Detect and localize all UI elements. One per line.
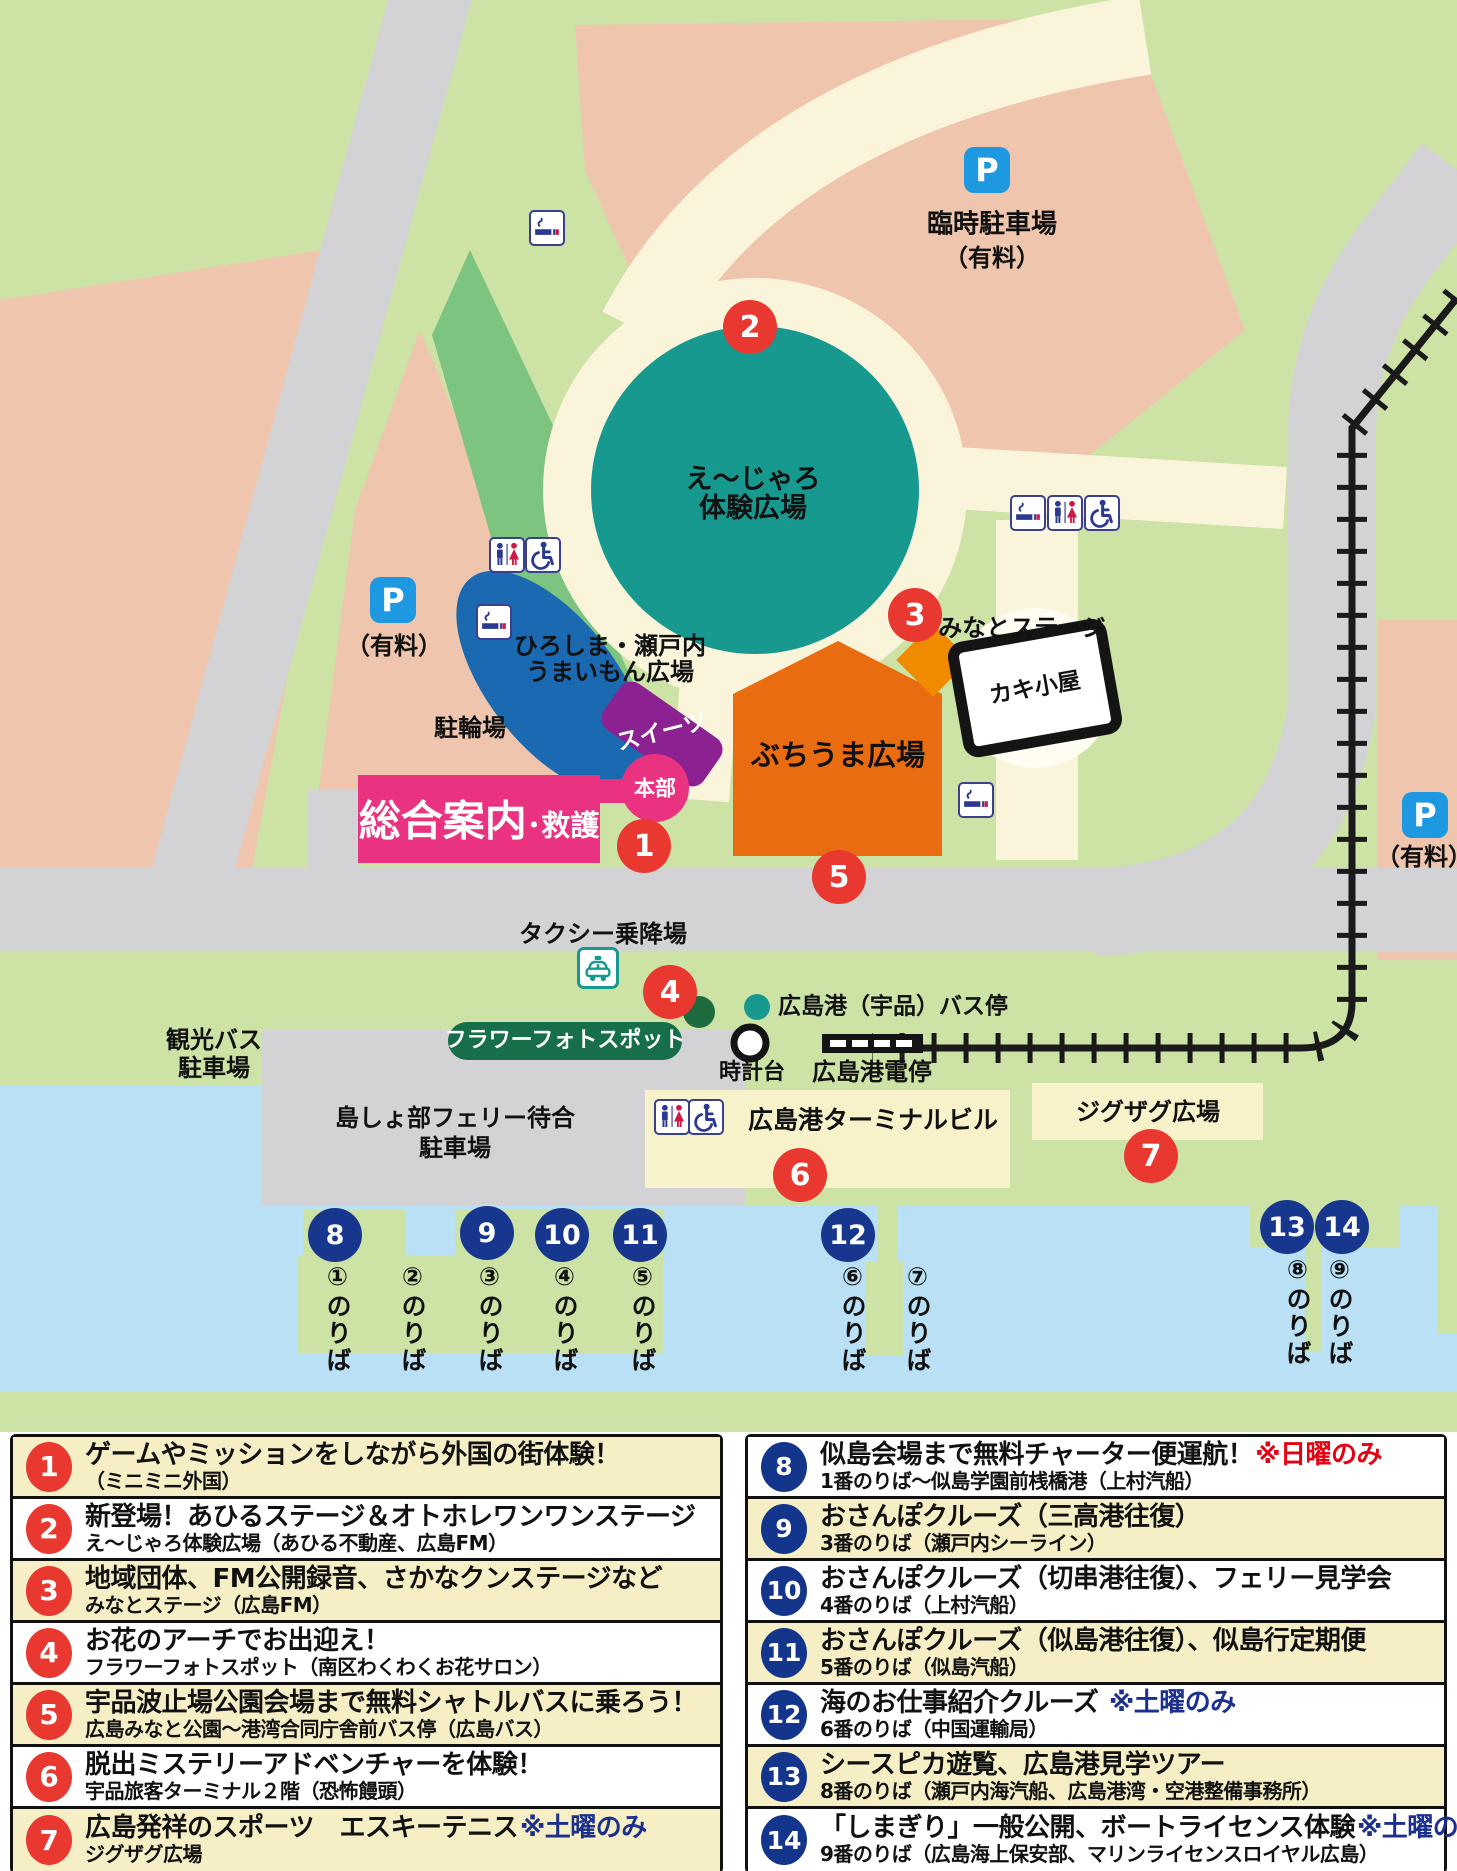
berth-label-8: ⑧のりば (1279, 1255, 1315, 1367)
smoking-icon (529, 210, 565, 246)
terminal-label: 広島港ターミナルビル (748, 1106, 998, 1134)
legend-number: 7 (26, 1815, 72, 1865)
bicycle-parking-label: 駐輪場 (434, 715, 506, 741)
legend-item-9: 9 おさんぽクルーズ（三高港往復）3番のりば（瀬戸内シーライン） (748, 1499, 1444, 1561)
info-banner-label: 総合案内･救護 (359, 788, 600, 849)
map-marker-2: 2 (723, 300, 777, 354)
west-parking-paid-label: （有料） (346, 633, 442, 659)
legend-item-6: 6 脱出ミステリーアドベンチャーを体験！宇品旅客ターミナル２階（恐怖饅頭） (13, 1747, 720, 1809)
wheelchair-icon (525, 537, 561, 573)
parking-icon: P (370, 577, 416, 623)
bus-stop-label: 広島港（宇品）バス停 (778, 994, 1008, 1019)
legend-item-2: 2 新登場！あひるステージ＆オトホレワンワンステージえ〜じゃろ体験広場（あひる不… (13, 1499, 720, 1561)
berth-label-1: ①のりば (319, 1262, 355, 1374)
parking-icon: P (964, 147, 1010, 193)
legend-number: 1 (26, 1442, 72, 1492)
legend-number: 12 (761, 1690, 807, 1740)
umaimon-label-1: ひろしま・瀬戸内 (514, 633, 706, 659)
legend-item-14: 14 「しまぎり」一般公開、ボートライセンス体験※土曜のみ9番のりば（広島海上保… (748, 1809, 1444, 1871)
east-parking-paid-label: （有料） (1376, 844, 1457, 870)
map-base-art (0, 0, 1457, 1432)
umaimon-label-2: うまいもん広場 (526, 659, 694, 685)
berth-label-2: ②のりば (394, 1262, 430, 1374)
water-west (0, 1085, 262, 1210)
map-marker-7: 7 (1124, 1129, 1178, 1183)
map-marker-10: 10 (535, 1208, 589, 1262)
tram-stop-label: 広島港電停 (812, 1059, 932, 1085)
legend-number: 10 (761, 1566, 807, 1616)
tour-bus-label-1: 観光バス (166, 1027, 262, 1053)
legend-number: 14 (761, 1815, 807, 1865)
ejaro-label-2: 体験広場 (699, 494, 807, 524)
legend-number: 13 (761, 1752, 807, 1802)
legend-item-7: 7 広島発祥のスポーツ エスキーテニス※土曜のみジグザグ広場 (13, 1809, 720, 1871)
buchiuma-label: ぶちうま広場 (751, 740, 925, 772)
map-marker-11: 11 (613, 1208, 667, 1262)
legend-item-3: 3 地域団体、FM公開録音、さかなクンステージなどみなとステージ（広島FM） (13, 1561, 720, 1623)
legend-number: 9 (761, 1504, 807, 1554)
port-festival-map: 臨時駐車場 （有料） （有料） （有料） え〜じゃろ 体験広場 ひろしま・瀬戸内… (0, 0, 1457, 1871)
wheelchair-icon (688, 1099, 724, 1135)
berth-label-3: ③のりば (471, 1262, 507, 1374)
map-marker-6: 6 (773, 1148, 827, 1202)
wheelchair-icon (1084, 495, 1120, 531)
clock-tower-icon (734, 1027, 766, 1059)
map-marker-12: 12 (821, 1208, 875, 1262)
legend-number: 5 (26, 1690, 72, 1740)
map-marker-5: 5 (812, 850, 866, 904)
legend-item-13: 13 シースピカ遊覧、広島港見学ツアー8番のりば（瀬戸内海汽船、広島港湾・空港整… (748, 1747, 1444, 1809)
tour-bus-label-2: 駐車場 (178, 1055, 250, 1081)
ejaro-label-1: え〜じゃろ (686, 465, 821, 495)
legend-item-8: 8 似島会場まで無料チャーター便運航！※日曜のみ1番のりば〜似島学園前桟橋港（上… (748, 1437, 1444, 1499)
flower-spot-label: フラワーフォトスポット (445, 1029, 686, 1053)
berth-label-6: ⑥のりば (834, 1262, 870, 1374)
legend-number: 2 (26, 1504, 72, 1554)
legend-number: 8 (761, 1442, 807, 1492)
legend-right-column: 8 似島会場まで無料チャーター便運航！※日曜のみ1番のりば〜似島学園前桟橋港（上… (745, 1434, 1447, 1871)
legend-number: 11 (761, 1628, 807, 1678)
zigzag-label: ジグザグ広場 (1076, 1099, 1220, 1125)
legend-item-12: 12 海のお仕事紹介クルーズ ※土曜のみ6番のりば（中国運輸局） (748, 1685, 1444, 1747)
temp-parking-paid-label: （有料） (944, 245, 1040, 271)
map-marker-13: 13 (1260, 1200, 1314, 1254)
taxi-icon (577, 947, 619, 989)
minato-stage-label: みなとステージ (938, 615, 1106, 641)
clock-tower-label: 時計台 (719, 1061, 785, 1085)
ferry-wait-label-2: 駐車場 (419, 1135, 491, 1161)
map-marker-9: 9 (460, 1206, 514, 1260)
ferry-wait-label-1: 島しょ部フェリー待合 (335, 1105, 575, 1131)
water (0, 1205, 1457, 1392)
map-marker-14: 14 (1315, 1200, 1369, 1254)
bus-stop-dot (744, 994, 770, 1020)
tram-platform-icon (822, 1034, 923, 1053)
map-marker-1: 1 (617, 819, 671, 873)
restroom-icon (654, 1099, 690, 1135)
legend-item-4: 4 お花のアーチでお出迎え！フラワーフォトスポット（南区わくわくお花サロン） (13, 1623, 720, 1685)
legend-number: 4 (26, 1628, 72, 1678)
legend-item-11: 11 おさんぽクルーズ（似島港往復）、似島行定期便5番のりば（似島汽船） (748, 1623, 1444, 1685)
smoking-icon (476, 604, 512, 640)
restroom-icon (1047, 495, 1083, 531)
smoking-icon (1010, 495, 1046, 531)
legend-item-5: 5 宇品波止場公園会場まで無料シャトルバスに乗ろう！広島みなと公園〜港湾合同庁舎… (13, 1685, 720, 1747)
temp-parking-label: 臨時駐車場 (927, 211, 1057, 240)
map-marker-4: 4 (643, 965, 697, 1019)
legend-item-10: 10 おさんぽクルーズ（切串港往復）、フェリー見学会4番のりば（上村汽船） (748, 1561, 1444, 1623)
berth-label-9: ⑨のりば (1321, 1255, 1357, 1367)
berth-label-4: ④のりば (546, 1262, 582, 1374)
legend-left-column: 1 ゲームやミッションをしながら外国の街体験！（ミニミニ外国） 2 新登場！あひ… (10, 1434, 723, 1871)
legend-number: 3 (26, 1566, 72, 1616)
map-marker-8: 8 (308, 1208, 362, 1262)
legend-item-1: 1 ゲームやミッションをしながら外国の街体験！（ミニミニ外国） (13, 1437, 720, 1499)
legend-number: 6 (26, 1752, 72, 1802)
restroom-icon (489, 537, 525, 573)
taxi-stand-label: タクシー乗降場 (519, 921, 687, 947)
smoking-icon (958, 782, 994, 818)
parking-icon: P (1402, 792, 1448, 838)
map-marker-3: 3 (888, 588, 942, 642)
berth-label-7: ⑦のりば (899, 1262, 935, 1374)
hq-label: 本部 (634, 777, 676, 800)
berth-label-5: ⑤のりば (624, 1262, 660, 1374)
